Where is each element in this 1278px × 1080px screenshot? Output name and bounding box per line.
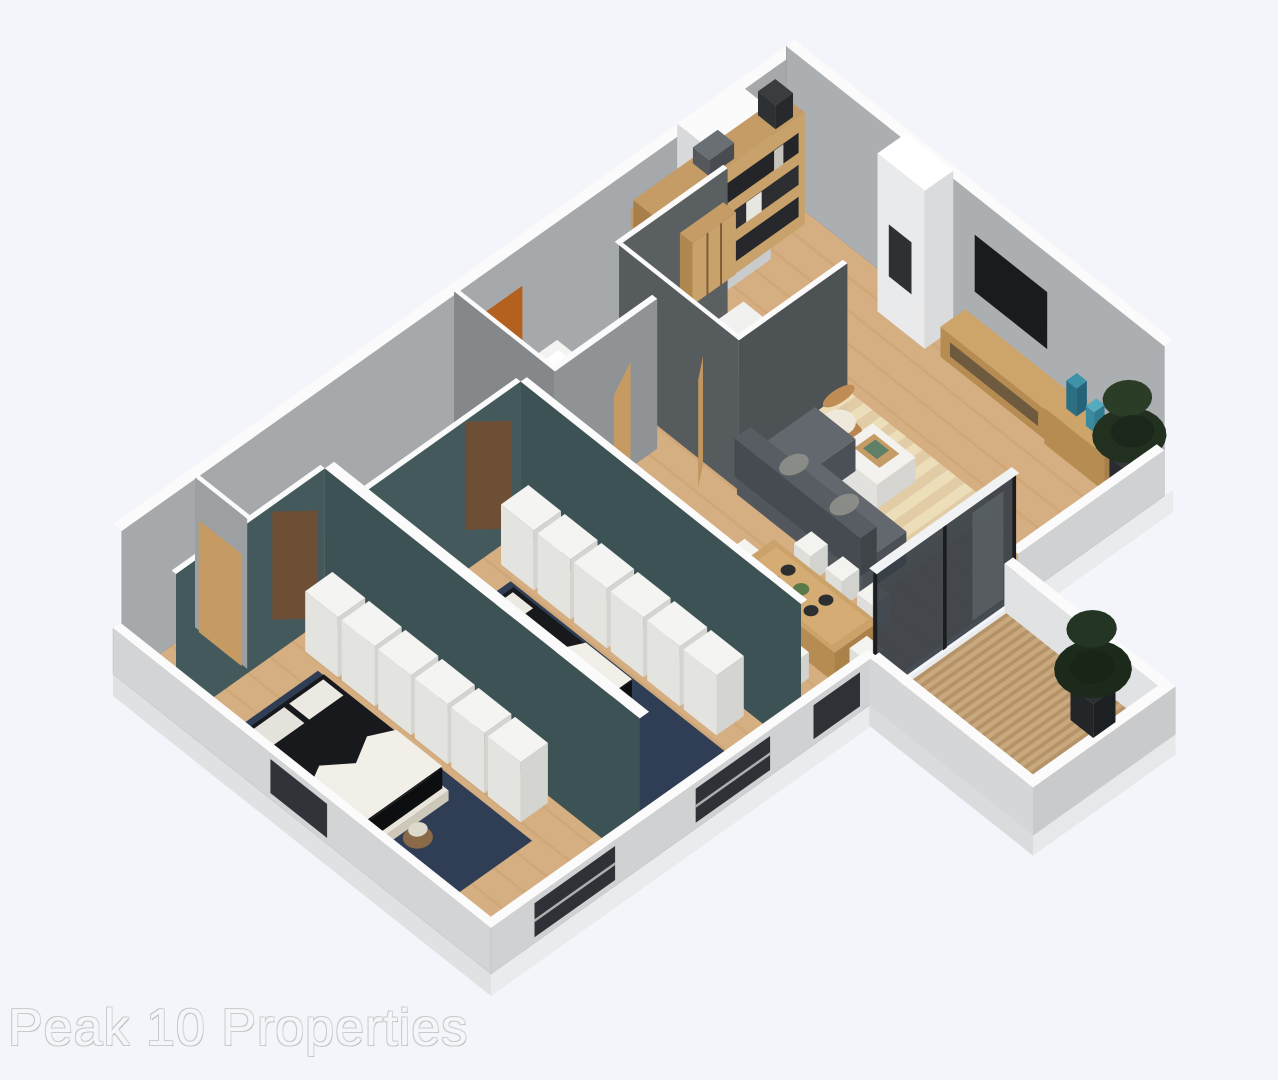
balcony-parapet [1033,781,1042,835]
glass-reflection [972,491,1003,621]
floorplan-3d-render [0,0,1278,1080]
floor-plan-image: Peak 10 Properties [0,0,1278,1080]
watermark: Peak 10 Properties [8,1000,468,1057]
glass-door-frame [943,520,947,651]
kitchen-shelf-divider [720,223,722,286]
kitchen-shelf-divider [707,232,709,295]
